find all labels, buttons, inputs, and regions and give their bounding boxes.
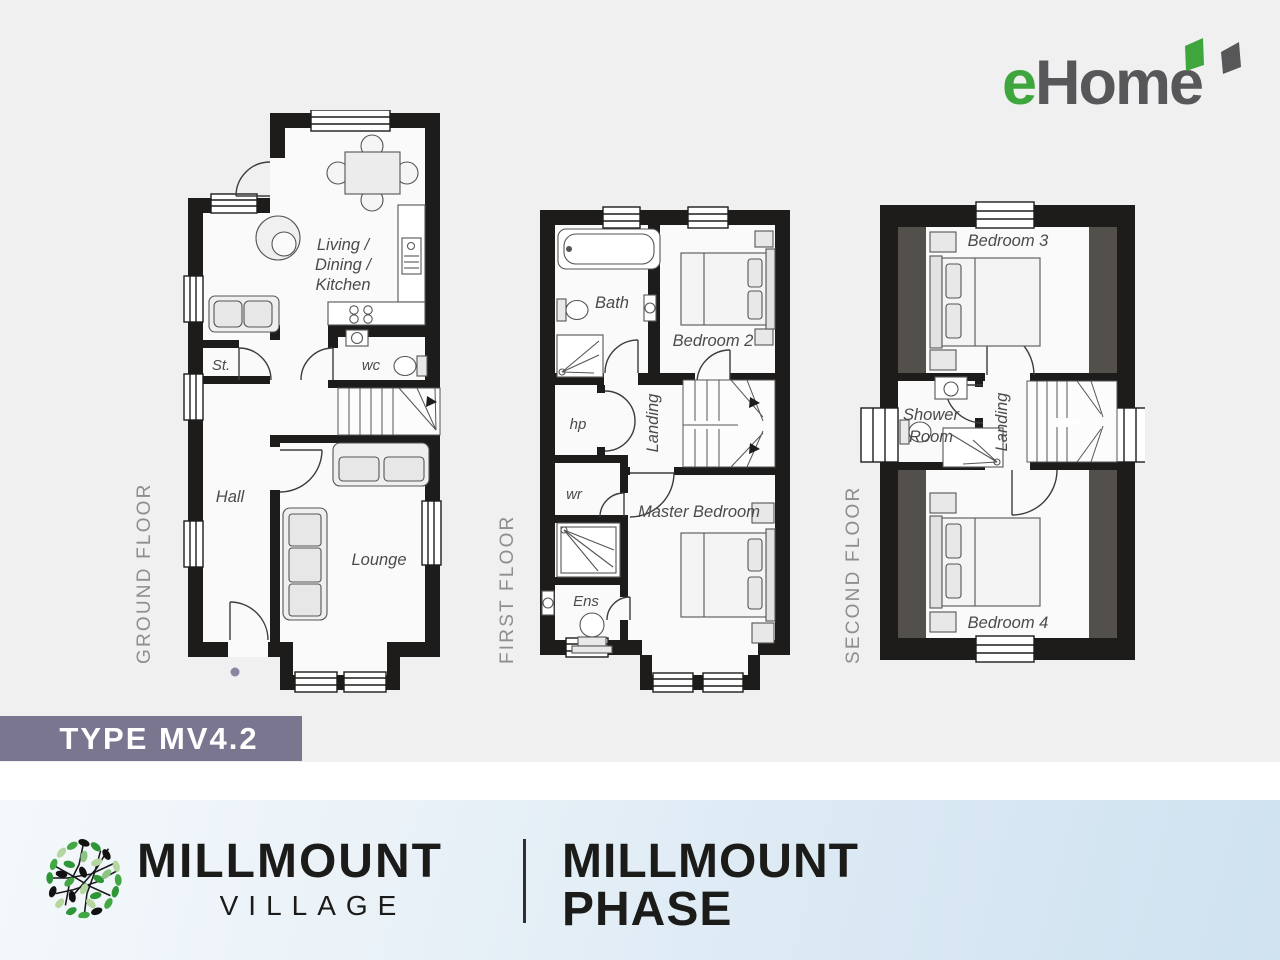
millmount-village-sub: VILLAGE xyxy=(137,892,489,920)
house-type-banner: TYPE MV4.2 xyxy=(0,716,302,761)
second-floor-label: SECOND FLOOR xyxy=(843,482,865,664)
room-label-ldk-line3: Kitchen xyxy=(315,276,370,294)
room-label-lounge: Lounge xyxy=(351,551,406,569)
first-floor-label: FIRST FLOOR xyxy=(497,519,519,664)
ground-floor-label: GROUND FLOOR xyxy=(134,484,156,664)
ground-stairs xyxy=(338,388,440,435)
ehome-logo: eHome xyxy=(1002,52,1202,115)
room-label-hall: Hall xyxy=(216,488,246,506)
ground-floor-plan: Living / Dining / Kitchen St. wc Hall Lo… xyxy=(183,110,458,705)
armchair xyxy=(256,216,300,260)
room-label-store: St. xyxy=(212,357,230,374)
room-label-landing-first: Landing xyxy=(644,393,662,453)
ehome-logo-text-gray: Home xyxy=(1035,48,1202,118)
room-label-shower-line2: Room xyxy=(909,428,953,446)
room-label-wr: wr xyxy=(566,486,583,503)
room-label-ensuite: Ens xyxy=(573,593,599,610)
millmount-tree-logo xyxy=(40,834,128,924)
room-label-ldk-line2: Dining / xyxy=(315,256,372,274)
second-floor-plan: Bedroom 3 Shower Room Landing Bedroom 4 xyxy=(845,200,1145,670)
room-label-bedroom3: Bedroom 3 xyxy=(968,232,1050,250)
ehome-logo-text-green: e xyxy=(1002,48,1035,118)
sofa-snug xyxy=(209,296,279,332)
second-stairs xyxy=(1027,381,1117,462)
millmount-phase-line2: PHASE xyxy=(562,886,732,934)
entrance-dot xyxy=(231,668,240,677)
millmount-phase-line1: MILLMOUNT xyxy=(562,838,859,886)
room-label-bath: Bath xyxy=(595,294,629,312)
room-label-landing-second: Landing xyxy=(993,392,1011,452)
millmount-village-name: MILLMOUNT xyxy=(137,838,443,886)
house-type-label: TYPE MV4.2 xyxy=(59,721,258,757)
room-label-bedroom2: Bedroom 2 xyxy=(673,332,754,350)
room-label-bedroom4: Bedroom 4 xyxy=(968,614,1049,632)
floorplan-sheet: eHome xyxy=(0,0,1280,960)
first-stairs xyxy=(683,380,775,467)
ehome-book-icon xyxy=(1183,36,1243,76)
first-floor-plan: Bath Bedroom 2 hp Landing wr Master Bedr… xyxy=(498,205,798,705)
room-label-wc: wc xyxy=(362,357,381,374)
room-label-master: Master Bedroom xyxy=(638,503,760,521)
footer-divider xyxy=(523,839,526,923)
room-label-hp: hp xyxy=(570,416,587,433)
room-label-shower-line1: Shower xyxy=(903,406,960,424)
room-label-ldk-line1: Living / xyxy=(317,236,371,254)
